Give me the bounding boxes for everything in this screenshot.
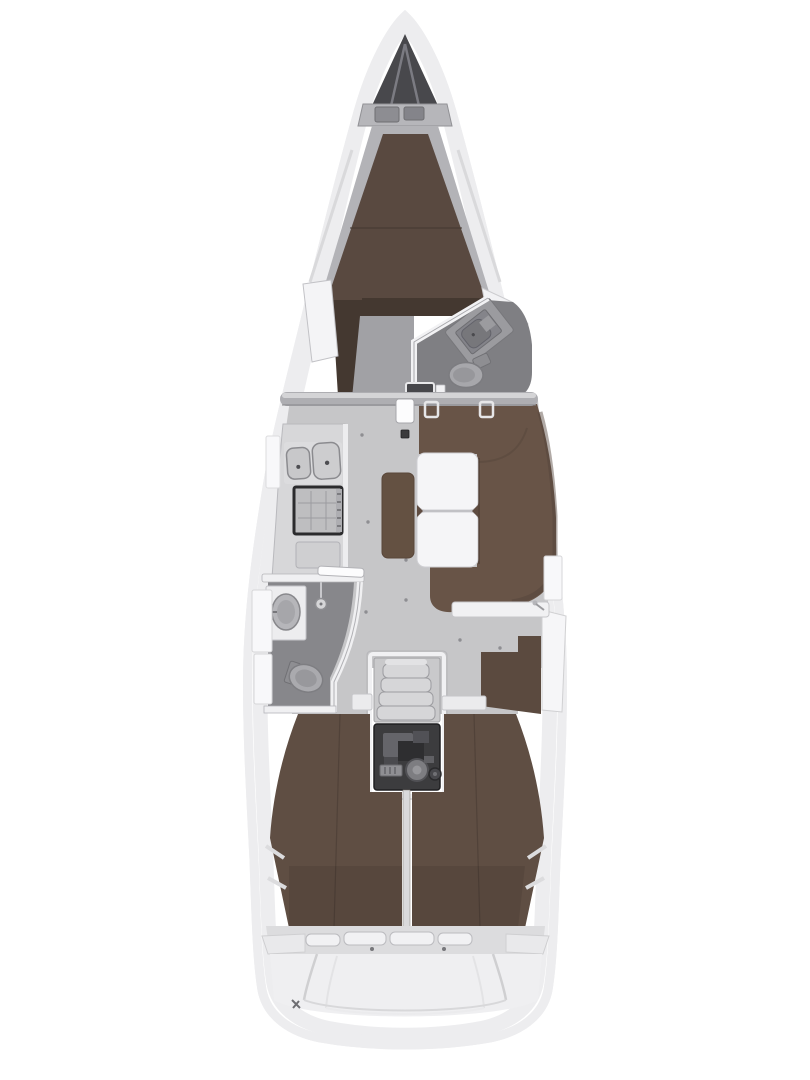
bow-locker-box-right [404,107,424,120]
stair-top-lip [385,659,427,665]
bow-locker-box-left [375,107,399,122]
engine-room [374,724,441,790]
engine-battery [380,765,402,776]
sink-left [286,447,311,480]
engine-manifold [398,741,424,761]
companionway-stairs [374,658,440,722]
transom-floor [270,954,542,1017]
floor-plan-canvas [0,0,810,1080]
galley-stove [294,487,342,534]
galley-jamb [343,424,348,578]
stair-tread-4 [383,664,429,678]
port-locker-aft [254,654,272,704]
engine-part [413,731,429,743]
step-wing-port [352,694,372,710]
step-wing-starboard [442,696,486,710]
aft-head-door-open [318,566,364,577]
table-leaf-aft [417,512,478,567]
bulkhead-beam-highlight [282,393,536,398]
stern-hatch-2 [344,932,386,945]
stern-latch-1 [370,947,374,951]
chaise-seat [382,473,414,558]
engine-part-3 [424,756,434,763]
cabin-door [396,399,414,423]
transom [262,926,549,1017]
stern-latch-2 [442,947,446,951]
galley-locker [296,542,340,568]
stair-tread-2 [379,692,433,706]
stern-hatch-4 [438,933,472,945]
aft-head-aft-wall [264,706,336,713]
starboard-hull-cabinet [542,610,566,712]
aft-head-basin [277,600,295,624]
stair-tread-1 [377,706,435,720]
starboard-locker-mid [544,556,562,600]
cabin-divider-wall [403,790,410,930]
stern-hatch-1 [306,934,340,946]
forward-toilet-seat [453,368,475,383]
yacht-floor-plan [0,0,810,1080]
mast-post [401,430,409,438]
forward-cabin-floor [352,316,414,398]
stair-tread-3 [381,678,431,692]
stove-frame [294,487,342,534]
port-locker-mid [252,590,272,652]
table-leaf-fwd [417,453,478,510]
port-locker-fwd [266,436,280,488]
galley [272,424,348,578]
stern-hatch-3 [390,932,434,945]
